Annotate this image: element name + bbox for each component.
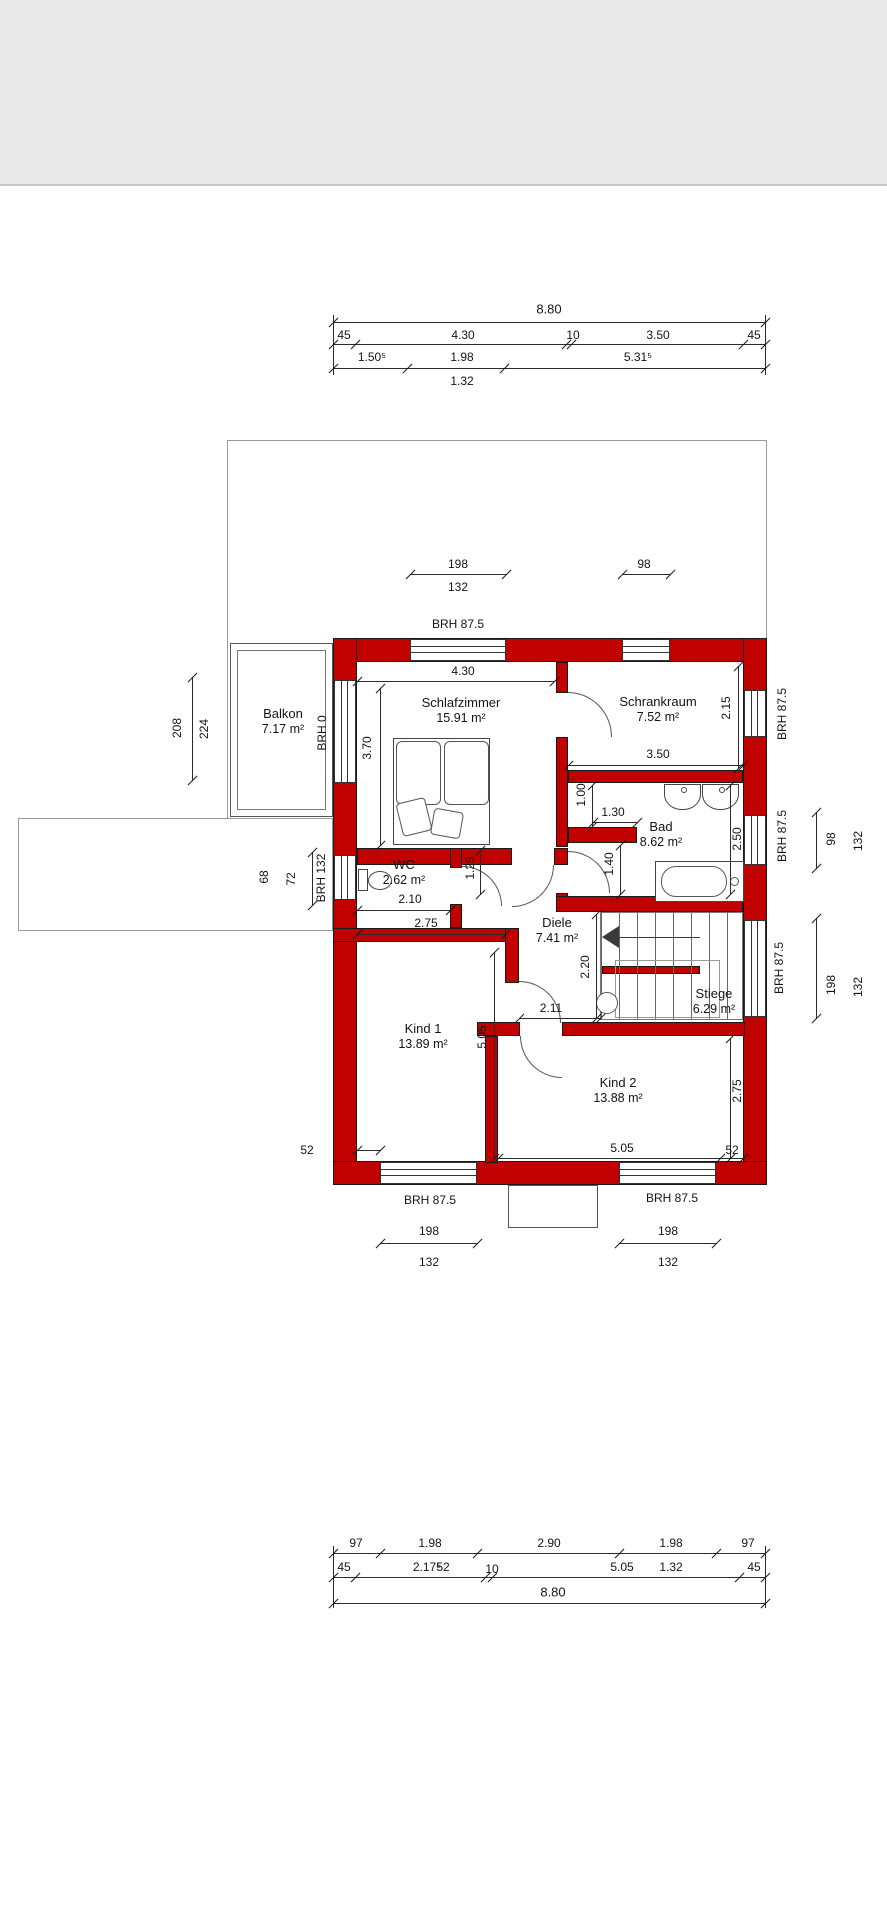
room-label-stiege: Stiege 6.29 m² [693,986,735,1018]
stair-direction-arrow [602,926,619,948]
brh-label: BRH 132 [314,854,328,903]
dim-line [333,1603,765,1604]
dim-line [480,850,481,894]
dim-label: 45 [337,328,350,342]
stair-start-circle [596,992,618,1014]
roof-outline-left [227,440,228,818]
wall-diele-kind2-right [562,1022,745,1036]
room-label-wc: WC 2.62 m² [383,857,425,889]
room-area: 7.41 m² [536,931,578,947]
room-area: 15.91 m² [422,711,501,727]
dim-label: 3.50 [646,328,669,342]
dim-line [192,677,193,780]
room-name: Schlafzimmer [422,695,501,711]
bed-mattress-right [444,741,489,805]
door-schlafzimmer [512,865,554,907]
bed-mattress-left [396,741,441,805]
dim-label: 1.32 [659,1560,682,1574]
dim-label: 4.30 [451,328,474,342]
dim-line [357,910,450,911]
dim-line [380,1243,477,1244]
wall-schlaf-south [357,848,512,865]
dim-label: 2.75 [414,916,437,930]
dim-label: 198 [824,975,838,995]
room-label-schrankraum: Schrankraum 7.52 m² [619,694,696,726]
room-area: 13.88 m² [593,1091,642,1107]
room-name: Diele [536,915,578,931]
dim-label: 132 [419,1255,439,1269]
wall-bad-niche [568,827,637,843]
door-kind2 [520,1036,562,1078]
room-name: Schrankraum [619,694,696,710]
dim-label: 98 [637,557,650,571]
window-stiege-east [744,920,766,1017]
dim-line [357,1150,380,1151]
dim-line [816,918,817,1018]
dim-label: 3.70 [360,736,374,759]
wall-diele-kind1 [505,928,519,983]
dim-line [333,368,765,369]
dim-label: 1.00 [574,783,588,806]
dim-label: 1.50⁵ [358,350,386,364]
dim-line [410,574,506,575]
dim-label: 3.50 [646,747,669,761]
room-name: Kind 2 [593,1075,642,1091]
door-schrankraum [568,692,612,737]
dim-label: 98 [824,832,838,845]
window-schlafzimmer-west [334,680,356,783]
dim-line [357,934,505,935]
brh-label: BRH 87.5 [775,688,789,740]
room-area: 7.52 m² [619,710,696,726]
room-name: WC [383,857,425,873]
room-name: Kind 1 [398,1021,447,1037]
dim-label: 1.40 [602,852,616,875]
dim-line [622,574,670,575]
dim-line [596,914,597,1018]
room-name: Stiege [693,986,735,1002]
room-name: Bad [640,819,682,835]
dim-label: 5.31⁵ [624,350,652,364]
dim-line [312,852,313,905]
dim-label: 45 [747,1560,760,1574]
dim-line [333,1577,765,1578]
bathtub-drain [730,877,739,886]
dim-label: 132 [851,977,865,997]
dim-label: 132 [448,580,468,594]
room-area: 7.17 m² [262,722,304,738]
dim-label: 97 [349,1536,362,1550]
dim-label: 5.05 [610,1141,633,1155]
window-wc-west [334,855,356,900]
dim-label: 1.30 [601,805,624,819]
dim-line [816,812,817,868]
brh-label: BRH 87.5 [404,1193,456,1207]
bed-pillow-right [430,808,464,840]
dim-label: 1.32 [450,374,473,388]
toilet-tank [358,869,368,891]
dim-label: 1.98 [659,1536,682,1550]
dim-line [593,822,637,823]
room-area: 8.62 m² [640,835,682,851]
room-area: 2.62 m² [383,873,425,889]
dim-label: 2.90 [537,1536,560,1550]
brh-label: BRH 87.5 [432,617,484,631]
dim-label: 45 [337,1560,350,1574]
room-label-diele: Diele 7.41 m² [536,915,578,947]
dim-line [592,785,593,826]
floor-plan-canvas: 8.80 45 4.30 10 3.50 45 1.50⁵ 1.98 5.31⁵… [0,0,887,1920]
dim-label: 132 [851,831,865,851]
sink-right [702,784,739,810]
dim-label: 2.15 [719,696,733,719]
roof-outline-top [227,440,767,441]
window-bad-east [744,815,766,865]
dim-label: 97 [741,1536,754,1550]
bathtub-inner [661,866,727,897]
window-schlafzimmer-north [410,639,506,661]
dim-label: 5.05 [610,1560,633,1574]
dim-label: 1.98 [450,350,473,364]
dim-line [519,1018,600,1019]
dim-label: 224 [197,719,211,739]
dim-line [568,765,743,766]
dim-label: 68 [257,870,271,883]
wall-north [333,638,767,662]
dim-line [620,845,621,894]
dim-label: 132 [658,1255,678,1269]
stair-arrow-tail [619,937,700,938]
brh-label: BRH 87.5 [646,1191,698,1205]
room-label-kind1: Kind 1 13.89 m² [398,1021,447,1053]
dim-line [380,688,381,845]
window-kind2-south [619,1162,716,1184]
room-label-bad: Bad 8.62 m² [640,819,682,851]
room-label-balkon: Balkon 7.17 m² [262,706,304,738]
wall-schlaf-south-jamb [554,848,568,865]
window-schrankraum-east [744,690,766,737]
window-kind1-south [380,1162,477,1184]
dim-label: 208 [170,718,184,738]
window-schrankraum-north [622,639,670,661]
brh-label: BRH 87.5 [775,810,789,862]
dim-label: 2.75 [730,1079,744,1102]
dim-line [498,1158,743,1159]
dim-line [357,681,554,682]
dim-line [333,1553,765,1554]
dim-label: 2.20 [578,955,592,978]
dim-label-total-top: 8.80 [536,302,561,317]
dim-label: 5.05 [475,1025,489,1048]
room-label-schlafzimmer: Schlafzimmer 15.91 m² [422,695,501,727]
wall-kind1-kind2 [485,1036,498,1163]
dim-label: 45 [747,328,760,342]
dim-line [494,952,495,1158]
dim-label: 2.11 [540,1001,562,1015]
chimney-bay [508,1185,598,1228]
top-gray-band [0,0,887,186]
dim-label: 198 [448,557,468,571]
room-name: Balkon [262,706,304,722]
dim-label: 52 [300,1143,313,1157]
dim-line [333,322,765,323]
roof-outline-right [766,440,767,640]
dim-label: 52 [436,1560,449,1574]
dim-label: 2.10 [398,892,421,906]
dim-label: 10 [566,328,579,342]
sink-left [664,784,701,810]
room-area: 13.89 m² [398,1037,447,1053]
dim-label: 72 [284,872,298,885]
dim-label: 1.98 [418,1536,441,1550]
dim-line [619,1243,716,1244]
dim-line [333,344,765,345]
brh-label: BRH 87.5 [772,942,786,994]
dim-line [738,666,739,768]
brh-label: BRH 0 [315,715,329,750]
wall-spine-mid [556,737,568,847]
dim-label: 4.30 [451,664,474,678]
room-label-kind2: Kind 2 13.88 m² [593,1075,642,1107]
dim-label: 198 [419,1224,439,1238]
dim-label-total-bottom: 8.80 [540,1585,565,1600]
dim-label: 2.50 [730,827,744,850]
room-area: 6.29 m² [693,1002,735,1018]
wall-wc-east-top [450,848,462,868]
dim-label: 198 [658,1224,678,1238]
dim-label: 1.25 [463,856,477,879]
